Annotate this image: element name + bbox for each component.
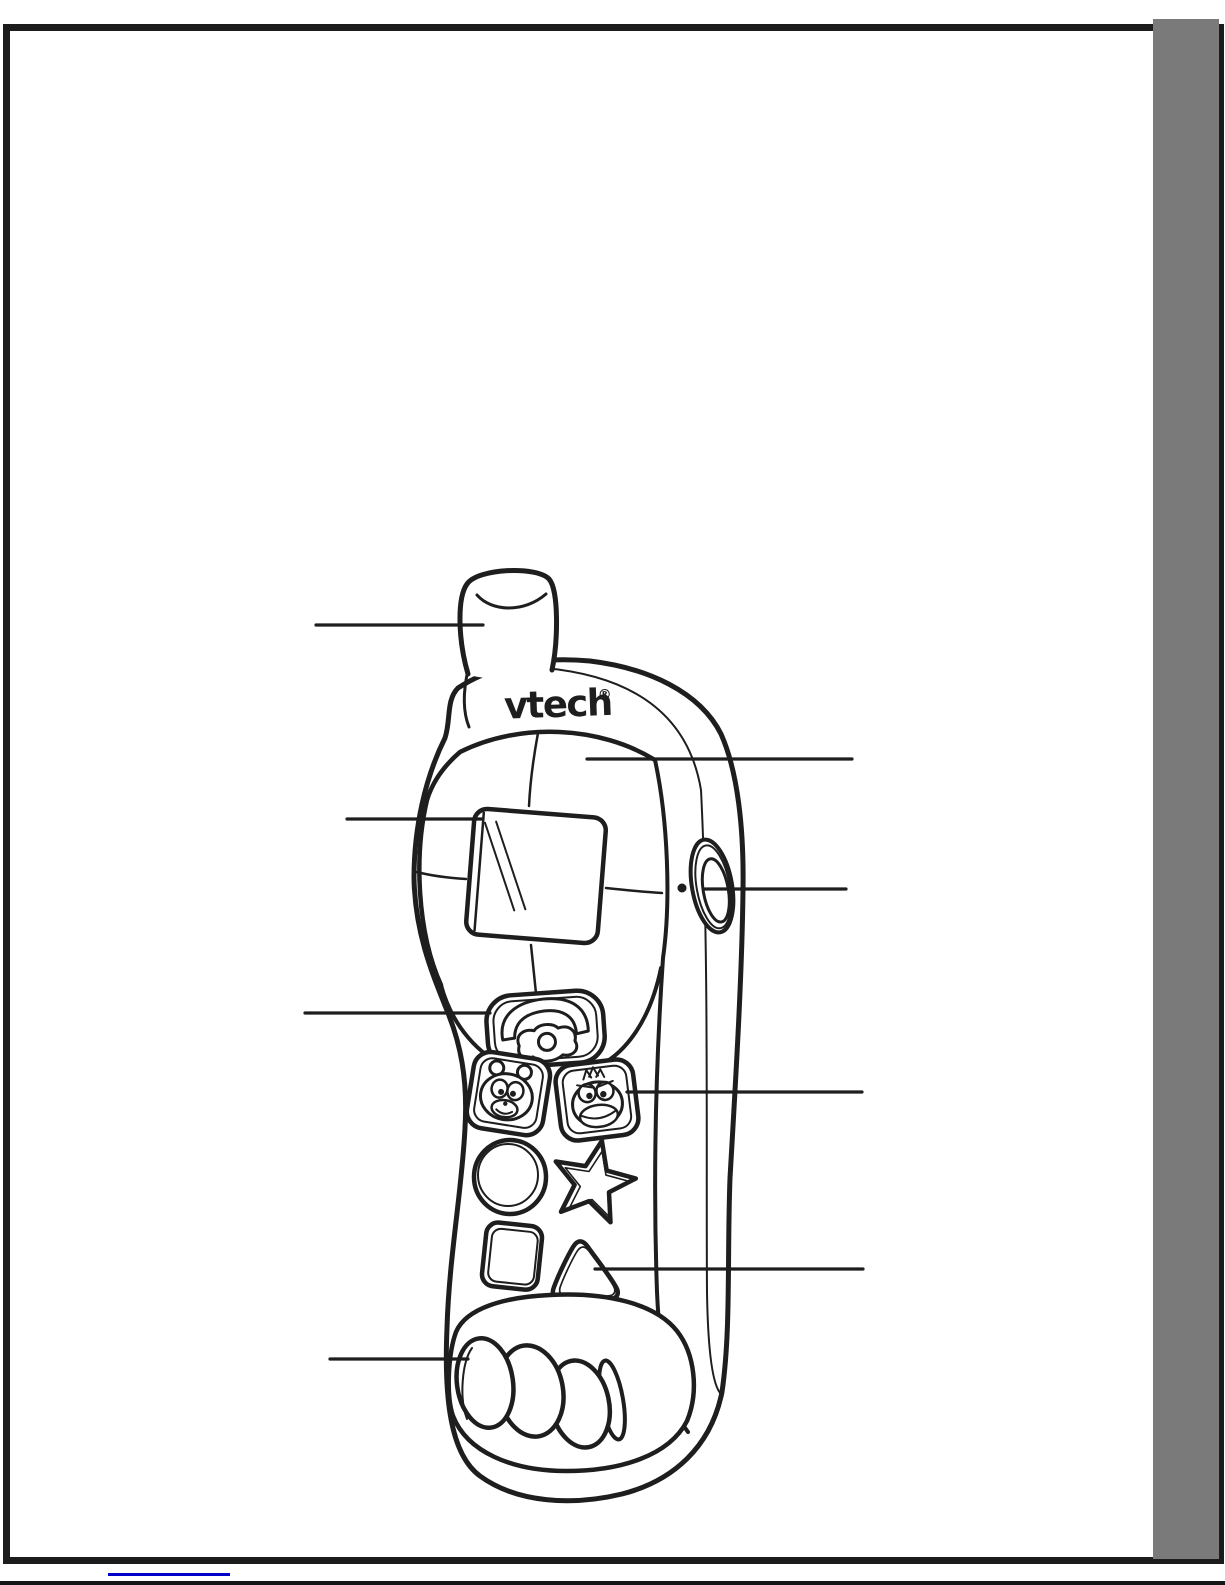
roller — [449, 1295, 694, 1471]
side-indicator-dot — [678, 884, 687, 893]
registered-mark: ® — [597, 687, 612, 703]
handset-icon-dot — [538, 1033, 556, 1051]
vtech-logo-text: vtech — [503, 681, 612, 728]
circle-button — [474, 1140, 546, 1214]
vtech-logo: vtech ® — [503, 681, 612, 728]
manual-page: vtech ® — [0, 0, 1225, 1585]
square-button — [481, 1221, 543, 1291]
duck-button — [554, 1058, 641, 1143]
bear-button — [464, 1050, 552, 1138]
screen — [465, 808, 606, 944]
footer-link-underline[interactable] — [108, 1573, 230, 1576]
page-bottom-rule — [0, 1581, 1225, 1585]
circle-button-outline — [474, 1140, 546, 1214]
toy-phone-illustration: vtech ® — [0, 0, 1225, 1585]
